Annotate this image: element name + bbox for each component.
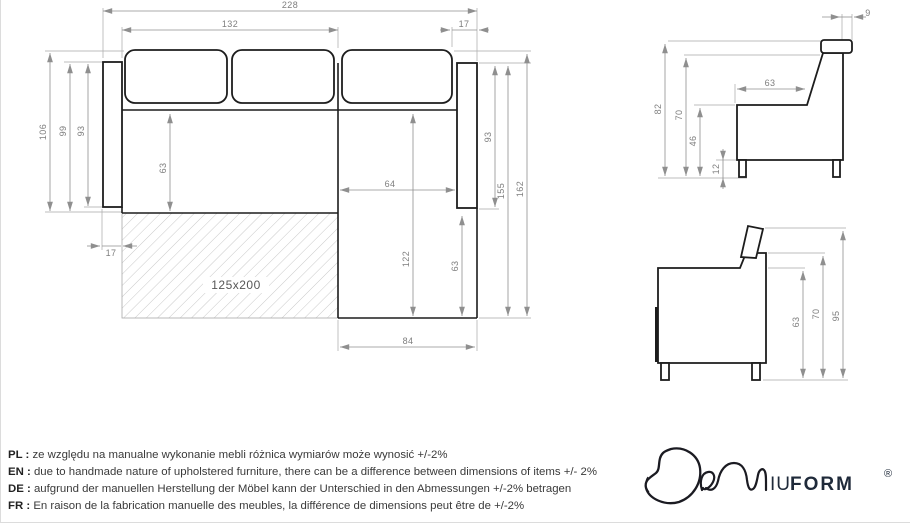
lang-separator: :: [24, 466, 34, 478]
lang-separator: :: [24, 483, 34, 495]
page-border-left: [0, 0, 1, 522]
dim-side-seat-depth-label: 63: [765, 78, 776, 88]
lang-separator: :: [23, 500, 33, 512]
technical-drawing: 228 132 17 106 99 93 63 64 17 125x200 12…: [0, 0, 910, 440]
dim-seat-width-label: 132: [222, 19, 238, 29]
disclaimer-text: aufgrund der manuellen Herstellung der M…: [34, 483, 571, 495]
lang-label: DE: [8, 483, 24, 495]
sofa-profile-body: [737, 53, 843, 160]
dim-chaise-ext-label: 63: [450, 261, 460, 272]
dim-chaise-length-label: 122: [401, 251, 411, 267]
back-cushion-3: [342, 50, 452, 103]
dim-right-93-label: 93: [483, 132, 493, 143]
leg-back: [833, 160, 840, 177]
dim-right-155-label: 155: [496, 183, 506, 199]
bed-size-label: 125x200: [211, 278, 261, 292]
bed-area-hatch: [122, 213, 338, 318]
disclaimer-block: PL : ze względu na manualne wykonanie me…: [8, 447, 597, 515]
disclaimer-row-fr: FR : En raison de la fabrication manuell…: [8, 498, 597, 515]
logo-letters-form: FORM: [790, 474, 854, 495]
dim-headrest-depth-label: 9: [865, 8, 870, 18]
dim-leg-height-label: 12: [711, 164, 721, 175]
disclaimer-row-de: DE : aufgrund der manuellen Herstellung …: [8, 481, 597, 498]
lang-label: FR: [8, 500, 23, 512]
dim-arm-63-label: 63: [791, 317, 801, 328]
lang-label: EN: [8, 466, 24, 478]
registered-trademark-icon: ®: [884, 468, 892, 480]
back-cushion-2: [232, 50, 334, 103]
lang-separator: :: [22, 449, 32, 461]
logo-script-m: [701, 463, 766, 490]
disclaimer-text: due to handmade nature of upholstered fu…: [34, 466, 597, 478]
page-border-bottom: [0, 522, 910, 523]
dim-left-offset-label: 17: [106, 248, 117, 258]
leg-left: [661, 363, 669, 380]
disclaimer-text: En raison de la fabrication manuelle des…: [33, 500, 524, 512]
product-dimensions-page: 228 132 17 106 99 93 63 64 17 125x200 12…: [0, 0, 910, 530]
right-armrest: [457, 63, 477, 208]
lang-label: PL: [8, 449, 22, 461]
dim-seat-depth-label: 63: [158, 163, 168, 174]
dim-depth-106-label: 106: [38, 124, 48, 140]
armrest-profile-body: [658, 253, 766, 363]
disclaimer-row-pl: PL : ze względu na manualne wykonanie me…: [8, 447, 597, 464]
disclaimer-text: ze względu na manualne wykonanie mebli r…: [32, 449, 447, 461]
side-handle-notch: [655, 307, 658, 362]
logo-letters-iu: IU: [770, 474, 791, 495]
dim-depth-99-label: 99: [58, 126, 68, 137]
dim-right-162-label: 162: [515, 181, 525, 197]
bean-icon: [646, 448, 701, 503]
dim-chaise-width-label: 84: [403, 336, 414, 346]
dim-chaise-inner-width-label: 64: [385, 179, 396, 189]
side-view-arm: 63 70 95: [655, 226, 848, 380]
dim-total-width-label: 228: [282, 0, 298, 10]
back-cushion-1: [125, 50, 227, 103]
side-view-back: 82 70 46 12 63 9: [653, 8, 871, 189]
dim-height-70-label: 70: [674, 110, 684, 121]
dim-seat-height-label: 46: [688, 136, 698, 147]
miuform-logo: IU FORM ®: [630, 440, 910, 520]
leg-front: [739, 160, 746, 177]
dim-arm-70-label: 70: [811, 309, 821, 320]
disclaimer-row-en: EN : due to handmade nature of upholster…: [8, 464, 597, 481]
leg-right: [752, 363, 760, 380]
left-armrest: [103, 62, 122, 207]
headrest-profile: [821, 40, 852, 53]
dim-depth-93-label: 93: [76, 126, 86, 137]
dim-arm-95-label: 95: [831, 311, 841, 322]
plan-view: 228 132 17 106 99 93 63 64 17 125x200 12…: [38, 0, 531, 351]
dim-height-82-label: 82: [653, 104, 663, 115]
dim-armrest-width-label: 17: [459, 19, 470, 29]
